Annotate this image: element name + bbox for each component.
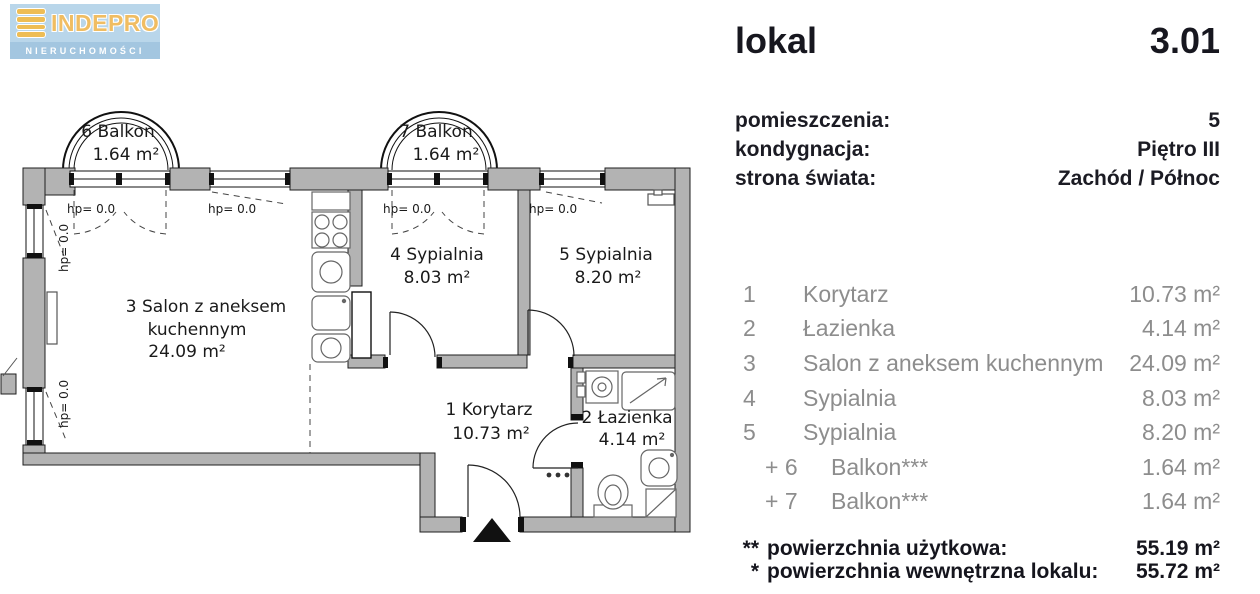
room-list-item: 5 Sypialnia 8.20 m² — [735, 415, 1220, 450]
total-row-usable-area: ** powierzchnia użytkowa: 55.19 m² — [735, 537, 1220, 560]
total-label: powierzchnia wewnętrzna lokalu: — [767, 560, 1136, 583]
kitchen-fixtures — [312, 192, 350, 362]
room-list-item: 2 Łazienka 4.14 m² — [735, 312, 1220, 347]
room-number: + 7 — [735, 488, 831, 515]
room-area: 8.20 m² — [1142, 419, 1220, 446]
room-number: 4 — [735, 385, 803, 412]
unit-info-panel: lokal 3.01 pomieszczenia: 5 kondygnacja:… — [735, 0, 1220, 589]
detail-row-orientation: strona świata: Zachód / Północ — [735, 164, 1220, 193]
total-label: powierzchnia użytkowa: — [767, 537, 1136, 560]
radiator-left — [47, 292, 57, 344]
salon-label-line1: 3 Salon z aneksem — [126, 297, 286, 317]
shower-icon — [622, 372, 675, 410]
totals-section: ** powierzchnia użytkowa: 55.19 m² * pow… — [735, 537, 1220, 583]
bedroom5-area: 8.20 m² — [575, 268, 642, 288]
room-name: Balkon*** — [831, 454, 1142, 481]
radiator-room5 — [648, 194, 674, 205]
unit-title: lokal — [735, 20, 817, 62]
room-list-item-balcony: + 6 Balkon*** 1.64 m² — [735, 450, 1220, 485]
hp-label: hp= 0.0 — [67, 202, 115, 216]
detail-label: strona świata: — [735, 164, 876, 193]
kitchen-cabinet — [312, 192, 350, 210]
room-number: 1 — [735, 281, 803, 308]
room-area: 1.64 m² — [1142, 454, 1220, 481]
hp-label: hp= 0.0 — [208, 202, 256, 216]
exterior-mark — [3, 358, 17, 376]
hp-label-vertical: hp= 0.0 — [57, 380, 71, 428]
room-name: Łazienka — [803, 315, 1142, 342]
room-list-item-balcony: + 7 Balkon*** 1.64 m² — [735, 485, 1220, 520]
room-name: Balkon*** — [831, 488, 1142, 515]
room-list-item: 3 Salon z aneksem kuchennym 24.09 m² — [735, 346, 1220, 381]
balcony7-area: 1.64 m² — [413, 145, 480, 165]
unit-number: 3.01 — [1150, 20, 1220, 62]
room-area: 8.03 m² — [1142, 385, 1220, 412]
room-number: + 6 — [735, 454, 831, 481]
bedroom5-label: 5 Sypialnia — [559, 245, 653, 265]
floor-plan-drawing: 6 Balkon 1.64 m² 7 Balkon 1.64 m² 3 Salo… — [0, 0, 700, 589]
balcony6-area: 1.64 m² — [93, 145, 160, 165]
bathroom-label: 2 Łazienka — [581, 408, 672, 428]
room-name: Korytarz — [803, 281, 1129, 308]
detail-label: pomieszczenia: — [735, 106, 890, 135]
washer-box — [577, 372, 585, 383]
room-area: 10.73 m² — [1129, 281, 1220, 308]
total-row-internal-area: * powierzchnia wewnętrzna lokalu: 55.72 … — [735, 560, 1220, 583]
total-marker: * — [735, 560, 759, 583]
detail-row-floor: kondygnacja: Piętro III — [735, 135, 1220, 164]
open-door-leaf — [352, 292, 371, 358]
room-number: 5 — [735, 419, 803, 446]
bathroom-area: 4.14 m² — [599, 430, 666, 450]
room-list: 1 Korytarz 10.73 m² 2 Łazienka 4.14 m² 3… — [735, 277, 1220, 519]
room-number: 2 — [735, 315, 803, 342]
room-area: 24.09 m² — [1129, 350, 1220, 377]
bedroom4-label: 4 Sypialnia — [390, 245, 484, 265]
room-number: 3 — [735, 350, 803, 377]
room-list-item: 1 Korytarz 10.73 m² — [735, 277, 1220, 312]
salon-label-line2: kuchennym — [148, 320, 247, 340]
hp-label-vertical: hp= 0.0 — [57, 224, 71, 272]
detail-label: kondygnacja: — [735, 135, 870, 164]
room-area: 4.14 m² — [1142, 315, 1220, 342]
balcony7-label: 7 Balkon — [399, 122, 472, 142]
total-value: 55.19 m² — [1136, 537, 1220, 560]
detail-value: Zachód / Północ — [1058, 164, 1220, 193]
hp-label: hp= 0.0 — [383, 202, 431, 216]
panel-header: lokal 3.01 — [735, 20, 1220, 62]
room-area: 1.64 m² — [1142, 488, 1220, 515]
detail-value: Piętro III — [1137, 135, 1220, 164]
floor-plan: 6 Balkon 1.64 m² 7 Balkon 1.64 m² 3 Salo… — [0, 0, 700, 589]
detail-value: 5 — [1208, 106, 1220, 135]
salon-area: 24.09 m² — [148, 342, 225, 362]
hp-label: hp= 0.0 — [529, 202, 577, 216]
total-value: 55.72 m² — [1136, 560, 1220, 583]
room-name: Sypialnia — [803, 419, 1142, 446]
corridor-area: 10.73 m² — [452, 424, 529, 444]
total-marker: ** — [735, 537, 759, 560]
entrance-arrow-icon — [473, 518, 511, 542]
door-dots — [547, 473, 570, 478]
corridor-label: 1 Korytarz — [446, 400, 533, 420]
bedroom4-area: 8.03 m² — [404, 268, 471, 288]
balcony6-label: 6 Balkon — [81, 122, 154, 142]
room-name: Sypialnia — [803, 385, 1142, 412]
room-list-item: 4 Sypialnia 8.03 m² — [735, 381, 1220, 416]
detail-row-rooms-count: pomieszczenia: 5 — [735, 106, 1220, 135]
unit-details: pomieszczenia: 5 kondygnacja: Piętro III… — [735, 106, 1220, 193]
room-name: Salon z aneksem kuchennym — [803, 350, 1129, 377]
